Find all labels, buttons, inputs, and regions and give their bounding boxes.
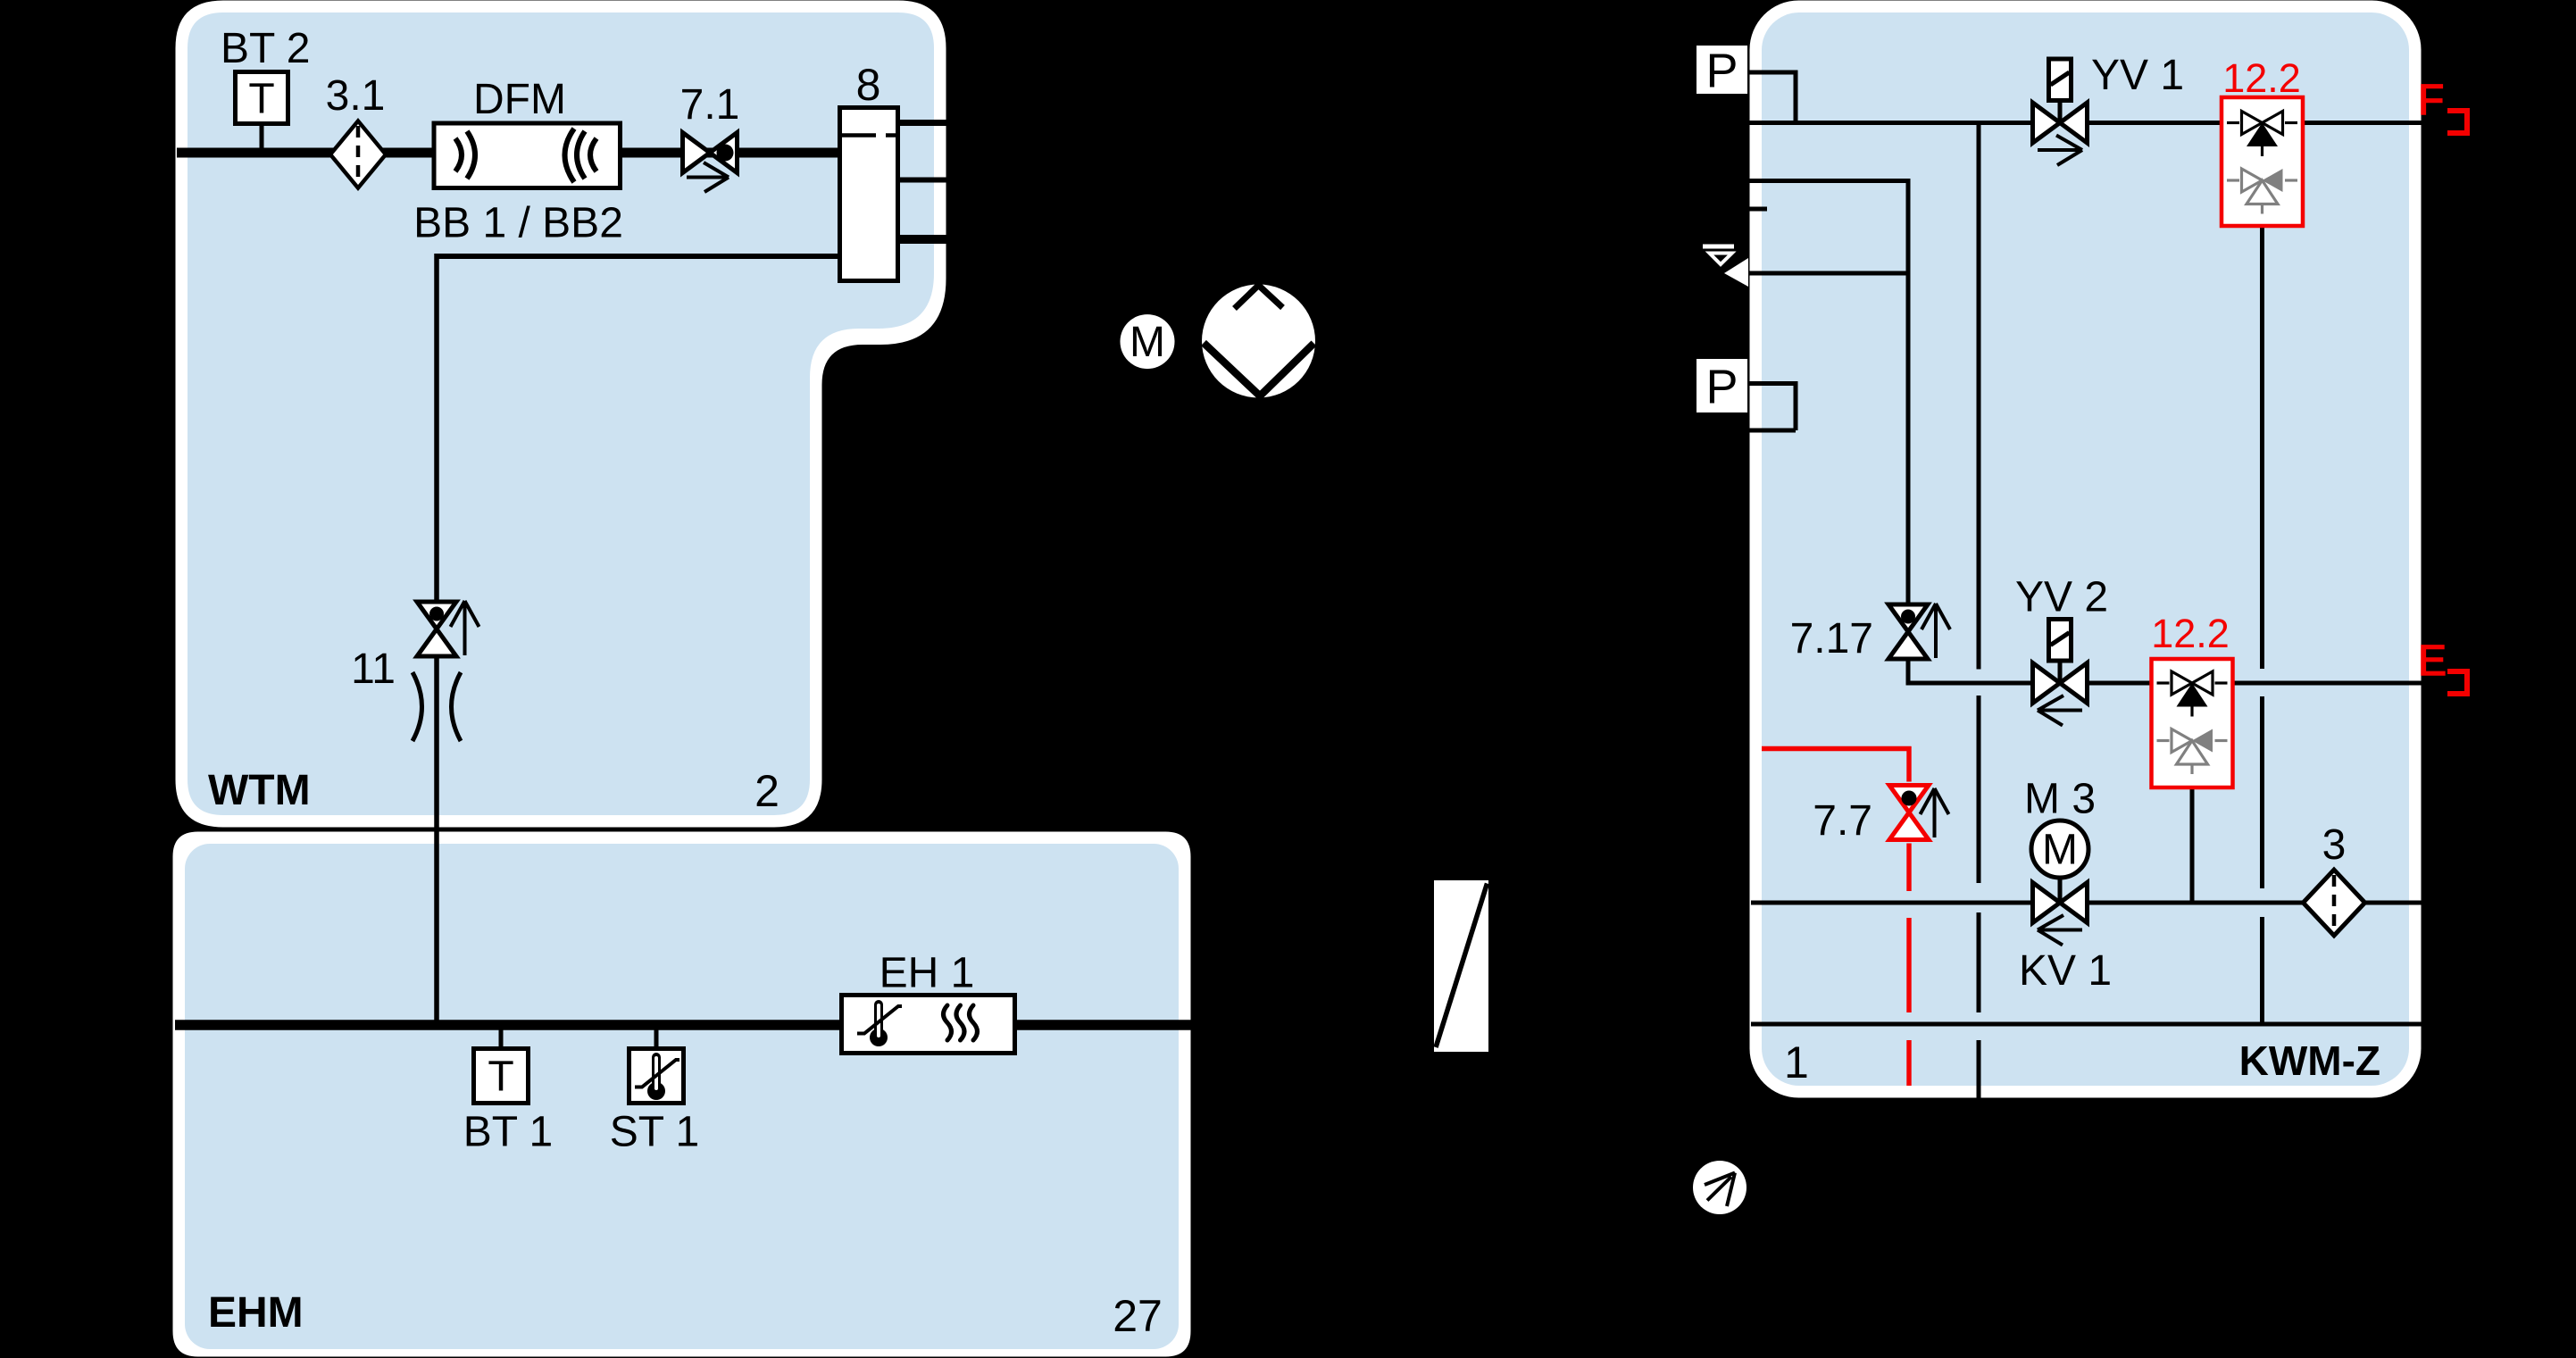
svg-text:DFM: DFM [473, 76, 566, 123]
svg-text:YV 2: YV 2 [2015, 574, 2108, 621]
svg-text:7.7: 7.7 [1813, 797, 1872, 845]
svg-text:P: P [1705, 45, 1738, 98]
svg-text:P: P [1705, 361, 1738, 414]
svg-text:8: 8 [856, 60, 881, 110]
svg-text:12.2: 12.2 [2151, 611, 2230, 656]
svg-text:EHM: EHM [208, 1289, 304, 1337]
svg-text:KV 1: KV 1 [2019, 947, 2112, 995]
svg-text:12.2: 12.2 [2222, 55, 2301, 101]
svg-text:YV 1: YV 1 [2091, 52, 2184, 99]
svg-text:3.1: 3.1 [326, 72, 386, 120]
svg-text:WTM: WTM [208, 767, 311, 814]
svg-text:T: T [488, 1054, 513, 1101]
svg-text:ST 1: ST 1 [610, 1109, 700, 1156]
svg-text:BT 2: BT 2 [221, 25, 311, 72]
svg-text:EH 1: EH 1 [880, 950, 975, 997]
svg-text:M 3: M 3 [2024, 776, 2096, 823]
svg-text:BT 1: BT 1 [463, 1109, 554, 1156]
svg-text:BB 1 / BB2: BB 1 / BB2 [413, 200, 623, 247]
svg-text:2: 2 [754, 766, 779, 816]
svg-text:KWM-Z: KWM-Z [2239, 1037, 2380, 1084]
svg-text:11: 11 [351, 646, 396, 693]
svg-text:E: E [2418, 637, 2447, 685]
svg-text:3: 3 [2322, 821, 2347, 869]
svg-text:M: M [1130, 319, 1165, 366]
svg-text:7.1: 7.1 [680, 81, 740, 129]
svg-text:27: 27 [1113, 1291, 1163, 1341]
svg-text:7.17: 7.17 [1790, 615, 1873, 662]
svg-text:1: 1 [1784, 1037, 1809, 1087]
svg-text:T: T [248, 76, 274, 123]
svg-text:F: F [2418, 77, 2444, 124]
svg-text:M: M [2042, 827, 2078, 874]
